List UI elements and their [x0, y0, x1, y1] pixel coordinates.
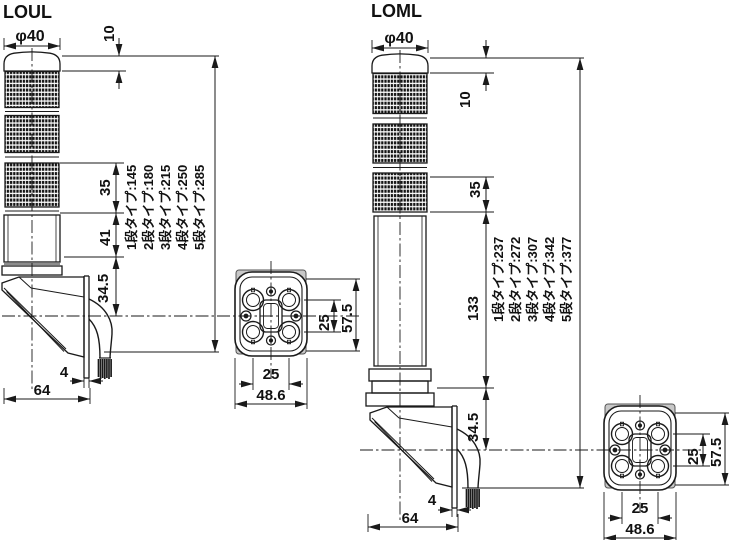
loml-stage-height-2: 2段タイプ:272	[508, 237, 523, 322]
loml-wall-bracket	[370, 406, 480, 509]
loml-flange-dim-pitch-v: 25	[685, 448, 702, 465]
loml-dim-depth: 64	[402, 510, 419, 527]
loul-flange-view: 25 57.5 25 48.6	[235, 261, 360, 409]
loml-dim-plate-thickness: 4	[428, 492, 437, 509]
loul-flange-dim-width: 48.6	[256, 387, 285, 404]
loul-diameter-label: φ40	[15, 28, 44, 45]
loml-stage-height-3: 3段タイプ:307	[525, 237, 540, 322]
loml-stage-height-4: 4段タイプ:342	[542, 237, 557, 322]
loml-flange-view: 25 57.5 25 48.6	[604, 395, 729, 540]
loml-flange-dim-height: 57.5	[708, 438, 725, 467]
loul-stage-height-table: 1段タイプ:145 2段タイプ:180 3段タイプ:215 4段タイプ:250 …	[124, 165, 207, 250]
loul-title: LOUL	[3, 2, 52, 22]
loul-dim-cap-height: 10	[101, 25, 118, 42]
loul-stage-height-4: 4段タイプ:250	[175, 165, 190, 250]
loml-dim-bracket-height: 34.5	[465, 413, 482, 442]
loul-dim-lens-height: 35	[97, 179, 114, 196]
loml-dim-lens-height: 35	[467, 181, 484, 198]
loml-stage-height-5: 5段タイプ:377	[559, 237, 574, 322]
loul-stage-height-5: 5段タイプ:285	[192, 165, 207, 250]
loul-dim-plate-thickness: 4	[60, 364, 69, 381]
technical-drawing-page: LOUL φ40	[0, 0, 730, 540]
loul-stage-height-3: 3段タイプ:215	[158, 165, 173, 250]
loul-flange-dim-height: 57.5	[339, 304, 356, 333]
loml-dim-pole-height: 133	[465, 296, 482, 321]
loul-dim-bracket-height: 34.5	[95, 274, 112, 303]
loul-drawing: LOUL φ40	[2, 2, 219, 404]
loml-stage-height-1: 1段タイプ:237	[491, 237, 506, 322]
loml-flange-dim-pitch-h: 25	[632, 500, 649, 517]
loml-stage-height-table: 1段タイプ:237 2段タイプ:272 3段タイプ:307 4段タイプ:342 …	[491, 237, 574, 322]
loml-title: LOML	[371, 1, 422, 21]
loul-stage-height-2: 2段タイプ:180	[141, 165, 156, 250]
loml-drawing: LOML φ40	[366, 1, 584, 532]
loul-dim-depth: 64	[34, 382, 51, 399]
loul-dim-body-height: 41	[97, 229, 114, 246]
signal-tower-dimension-drawing: LOUL φ40	[0, 0, 730, 540]
loml-diameter-label: φ40	[384, 30, 413, 47]
loul-flange-dim-pitch-v: 25	[316, 314, 333, 331]
loul-flange-dim-pitch-h: 25	[263, 366, 280, 383]
loml-dim-cap-height: 10	[457, 91, 474, 108]
loml-flange-dim-width: 48.6	[625, 521, 654, 538]
loul-stage-height-1: 1段タイプ:145	[124, 165, 139, 250]
